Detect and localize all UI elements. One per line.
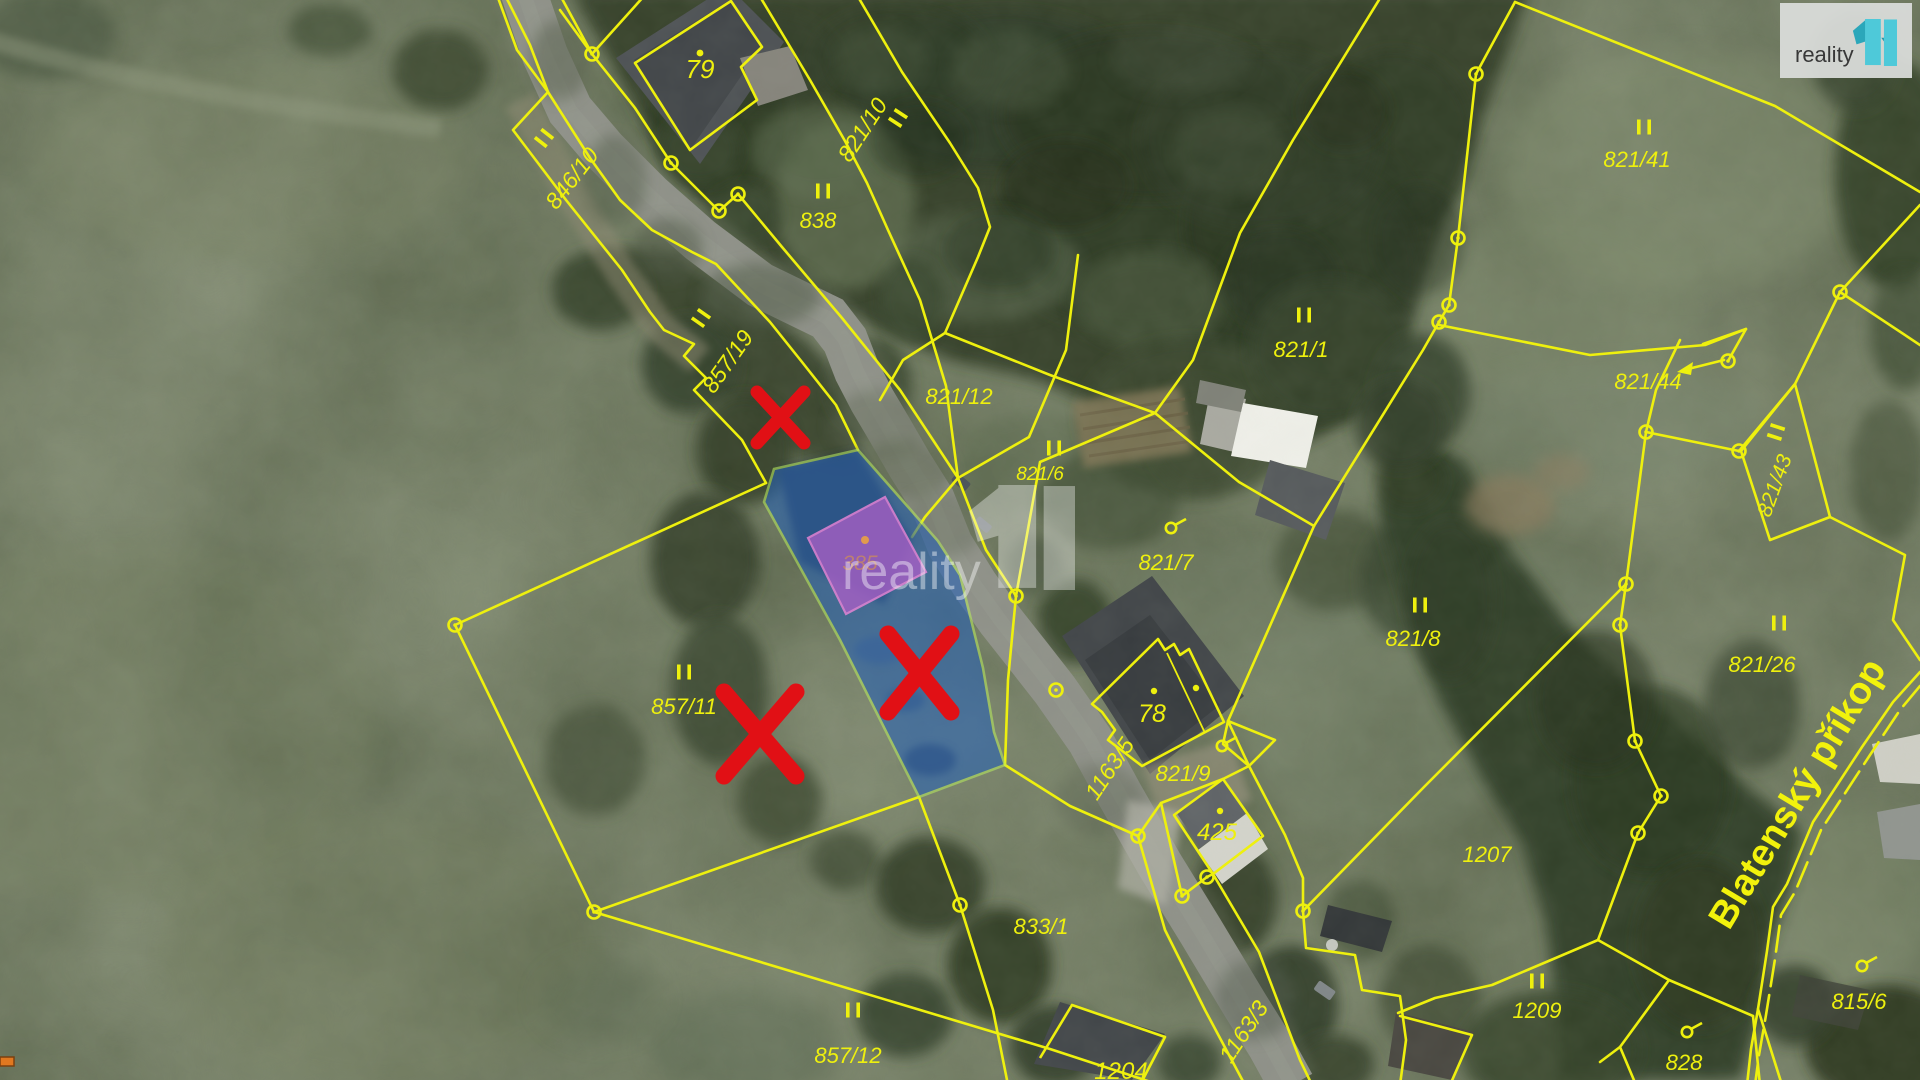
svg-text:833/1: 833/1 bbox=[1013, 914, 1068, 939]
svg-text:821/41: 821/41 bbox=[1603, 147, 1670, 172]
svg-text:79: 79 bbox=[686, 54, 715, 84]
svg-text:857/12: 857/12 bbox=[814, 1043, 881, 1068]
svg-text:821/7: 821/7 bbox=[1138, 550, 1194, 575]
svg-text:425: 425 bbox=[1197, 819, 1238, 846]
svg-text:1207: 1207 bbox=[1463, 842, 1513, 867]
svg-text:821/12: 821/12 bbox=[925, 384, 992, 409]
svg-text:821/1: 821/1 bbox=[1273, 337, 1328, 362]
svg-text:821/26: 821/26 bbox=[1728, 652, 1796, 677]
svg-text:857/11: 857/11 bbox=[651, 694, 717, 719]
svg-text:828: 828 bbox=[1666, 1050, 1703, 1075]
svg-text:reality: reality bbox=[1795, 42, 1854, 67]
svg-text:1209: 1209 bbox=[1513, 998, 1562, 1023]
svg-text:reality: reality bbox=[842, 543, 981, 601]
svg-text:78: 78 bbox=[1138, 700, 1166, 728]
svg-text:821/8: 821/8 bbox=[1385, 626, 1441, 651]
svg-text:1204: 1204 bbox=[1094, 1058, 1147, 1080]
svg-text:821/6: 821/6 bbox=[1016, 464, 1064, 485]
svg-text:821/9: 821/9 bbox=[1155, 761, 1210, 786]
svg-text:838: 838 bbox=[800, 208, 837, 233]
svg-text:815/6: 815/6 bbox=[1831, 989, 1887, 1014]
svg-text:821/44: 821/44 bbox=[1614, 369, 1681, 394]
